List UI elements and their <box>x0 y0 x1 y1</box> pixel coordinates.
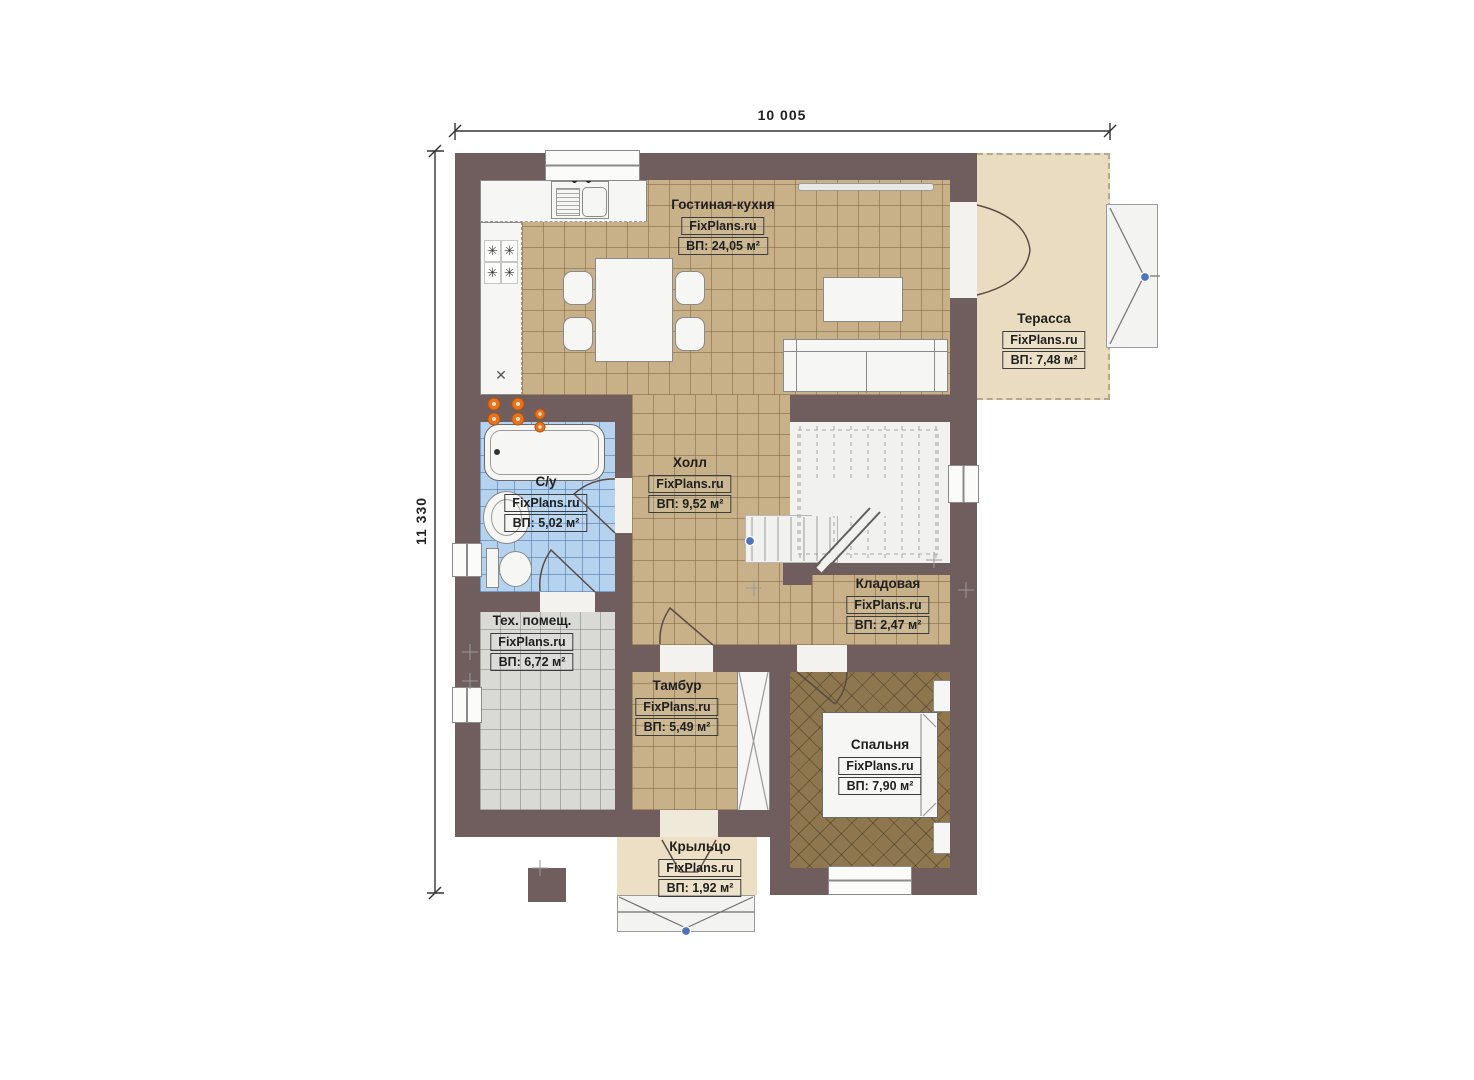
door-opening-bathroom <box>615 478 632 533</box>
dimension-height: 11 330 <box>413 497 429 545</box>
label-bathroom: С/у FixPlans.ru ВП: 5,02 м² <box>504 474 587 532</box>
wall-bottom-connector <box>770 810 790 895</box>
stove-burner-icon: ✳ <box>484 240 501 262</box>
stove-burner-icon: ✳ <box>484 262 501 284</box>
label-terrace: Терасса FixPlans.ru ВП: 7,48 м² <box>1002 311 1085 369</box>
wall-tech-vestibule <box>615 612 632 810</box>
stove-icon: ✳ ✳ ✳ ✳ <box>484 240 518 284</box>
room-name: Крыльцо <box>669 839 730 854</box>
room-name: Холл <box>673 455 707 470</box>
brand-watermark: FixPlans.ru <box>504 494 587 512</box>
door-opening-terrace <box>950 202 977 298</box>
room-name: Тех. помещ. <box>493 613 572 628</box>
wall-left-upper <box>455 180 480 543</box>
dining-chair <box>563 317 593 351</box>
sofa-armrest <box>934 340 935 391</box>
room-name: Терасса <box>1017 311 1071 326</box>
floor-hall-passage <box>790 585 812 645</box>
wall-living-bathroom <box>480 395 632 422</box>
toilet-tank <box>486 548 499 588</box>
door-opening-entrance <box>660 810 718 837</box>
wall-stairs-bottom <box>790 563 950 575</box>
wall-top-right <box>640 153 950 180</box>
stove-burner-icon: ✳ <box>501 262 518 284</box>
label-porch: Крыльцо FixPlans.ru ВП: 1,92 м² <box>658 839 741 897</box>
sofa-armrest <box>796 340 797 391</box>
label-hall: Холл FixPlans.ru ВП: 9,52 м² <box>648 455 731 513</box>
dining-table <box>595 258 673 362</box>
wall-bottom-left <box>455 810 660 837</box>
room-area: ВП: 5,49 м² <box>636 718 719 736</box>
brand-watermark: FixPlans.ru <box>658 859 741 877</box>
window-tech-left <box>452 687 482 723</box>
room-area: ВП: 2,47 м² <box>847 616 930 634</box>
kitchen-sink <box>551 181 609 219</box>
window-bathroom-left <box>452 543 482 577</box>
sink-drainboard <box>556 188 580 216</box>
wardrobe <box>737 670 770 812</box>
wall-bedroom-top-right <box>847 645 950 672</box>
room-name: Тамбур <box>653 678 702 693</box>
brand-watermark: FixPlans.ru <box>681 217 764 235</box>
window-kitchen-top <box>545 150 640 181</box>
brand-watermark: FixPlans.ru <box>635 698 718 716</box>
wall-living-stairs <box>790 395 950 422</box>
wall-bottom-center <box>718 810 770 837</box>
room-name: Гостиная-кухня <box>671 197 774 212</box>
wall-hall-vestibule-left <box>632 645 660 672</box>
wall-bottom-bedroom-left <box>790 868 830 895</box>
room-area: ВП: 7,90 м² <box>839 777 922 795</box>
brand-watermark: FixPlans.ru <box>648 475 731 493</box>
room-name: Спальня <box>851 737 909 752</box>
sofa <box>783 339 948 392</box>
wall-left-lower <box>455 723 480 810</box>
wall-bedroom-top-left <box>770 645 797 672</box>
wall-bathroom-hall-upper <box>615 422 632 478</box>
wall-right-upper <box>950 153 977 202</box>
label-living-kitchen: Гостиная-кухня FixPlans.ru ВП: 24,05 м² <box>671 197 774 255</box>
door-opening-bedroom <box>797 645 847 672</box>
wall-bathroom-tech-left <box>480 592 540 612</box>
door-opening-tech <box>540 592 595 612</box>
wall-bottom-bedroom-right <box>910 868 950 895</box>
terrace-steps <box>1106 204 1158 348</box>
bathtub-faucet-icon <box>494 449 500 455</box>
label-vestibule: Тамбур FixPlans.ru ВП: 5,49 м² <box>635 678 718 736</box>
door-opening-vestibule-hall <box>660 645 713 672</box>
dining-chair <box>563 271 593 305</box>
wall-bedroom-left <box>770 672 790 810</box>
brand-watermark: FixPlans.ru <box>838 757 921 775</box>
wall-storage-stub <box>783 563 812 585</box>
dimension-width: 10 005 <box>758 107 807 123</box>
utility-cross-icon: ✕ <box>486 360 516 390</box>
room-area: ВП: 6,72 м² <box>491 653 574 671</box>
wall-hall-vestibule-right <box>713 645 770 672</box>
room-area: ВП: 7,48 м² <box>1003 351 1086 369</box>
bathtub <box>484 424 605 481</box>
window-bedroom-bottom <box>828 866 912 895</box>
porch-column <box>528 868 566 902</box>
tv-unit <box>798 183 934 191</box>
room-name: С/у <box>535 474 556 489</box>
porch-steps <box>617 895 755 932</box>
sofa-divider <box>866 351 867 393</box>
label-bedroom: Спальня FixPlans.ru ВП: 7,90 м² <box>838 737 921 795</box>
wall-right-lower <box>950 503 977 895</box>
room-area: ВП: 9,52 м² <box>649 495 732 513</box>
coffee-table <box>823 277 903 322</box>
wall-bathroom-hall-lower <box>615 533 632 592</box>
wall-right-middle <box>950 298 977 465</box>
wall-left-middle <box>455 577 480 687</box>
wall-top-left <box>455 153 545 180</box>
bathtub-inner <box>490 430 599 475</box>
toilet-bowl <box>499 551 532 587</box>
staircase-lower-flight <box>745 515 838 563</box>
brand-watermark: FixPlans.ru <box>490 633 573 651</box>
room-name: Кладовая <box>856 576 921 591</box>
label-storage: Кладовая FixPlans.ru ВП: 2,47 м² <box>846 576 929 634</box>
sink-basin <box>582 187 607 217</box>
wall-bathroom-tech-right <box>595 592 632 612</box>
floor-plan: ✳ ✳ ✳ ✳ ✕ Гостиная-кухня FixPlans.ru ВП:… <box>0 0 1474 1080</box>
label-tech-room: Тех. помещ. FixPlans.ru ВП: 6,72 м² <box>490 613 573 671</box>
window-stairs-right <box>948 465 979 503</box>
stove-burner-icon: ✳ <box>501 240 518 262</box>
dining-chair <box>675 317 705 351</box>
brand-watermark: FixPlans.ru <box>846 596 929 614</box>
room-area: ВП: 1,92 м² <box>659 879 742 897</box>
room-area: ВП: 5,02 м² <box>505 514 588 532</box>
room-area: ВП: 24,05 м² <box>678 237 768 255</box>
brand-watermark: FixPlans.ru <box>1002 331 1085 349</box>
dining-chair <box>675 271 705 305</box>
